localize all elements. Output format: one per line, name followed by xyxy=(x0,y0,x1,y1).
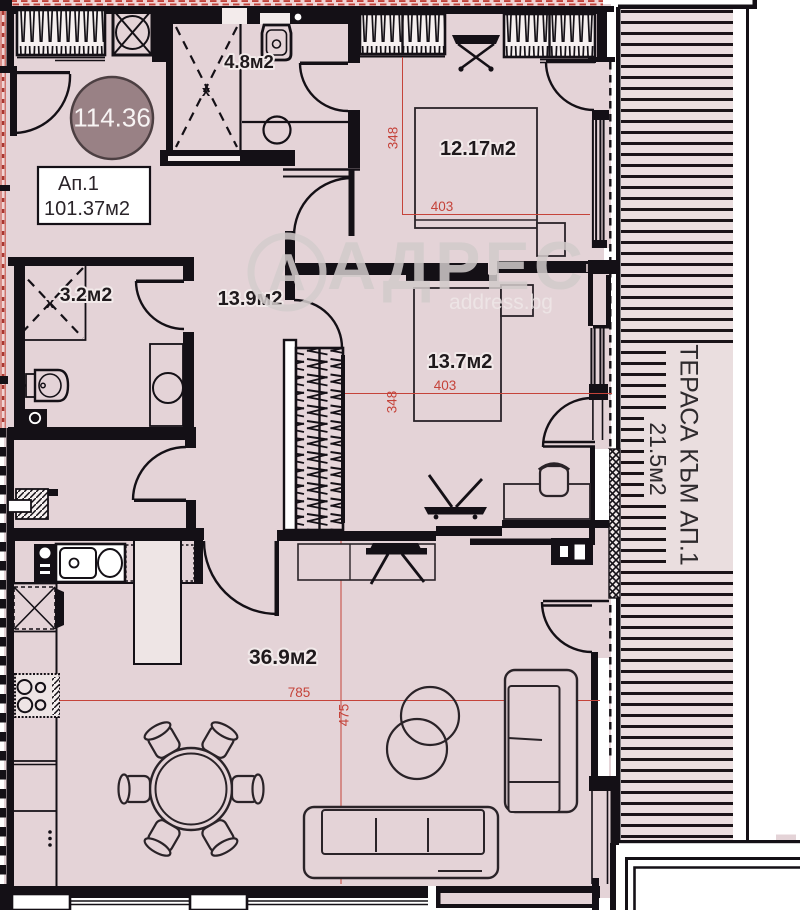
svg-text:А: А xyxy=(268,244,306,302)
svg-text:x: x xyxy=(46,295,55,312)
svg-text:348: 348 xyxy=(386,127,401,150)
svg-text:21.5м2: 21.5м2 xyxy=(645,422,671,495)
svg-text:3.2м2: 3.2м2 xyxy=(60,284,113,306)
svg-text:348: 348 xyxy=(385,391,400,414)
svg-text:x: x xyxy=(202,83,211,100)
svg-text:403: 403 xyxy=(431,199,454,214)
svg-text:address.bg: address.bg xyxy=(449,291,553,314)
svg-text:4.8м2: 4.8м2 xyxy=(224,51,274,72)
svg-text:13.7м2: 13.7м2 xyxy=(428,351,493,373)
svg-text:12.17м2: 12.17м2 xyxy=(440,138,516,160)
svg-text:403: 403 xyxy=(434,378,457,393)
svg-text:Ап.1: Ап.1 xyxy=(58,173,99,195)
svg-text:101.37м2: 101.37м2 xyxy=(44,198,130,220)
svg-text:785: 785 xyxy=(288,685,311,700)
svg-text:475: 475 xyxy=(337,704,352,727)
svg-text:ТЕРАСА КЪМ АП.1: ТЕРАСА КЪМ АП.1 xyxy=(674,344,702,566)
svg-text:36.9м2: 36.9м2 xyxy=(249,646,317,669)
svg-text:114.36: 114.36 xyxy=(73,103,151,133)
